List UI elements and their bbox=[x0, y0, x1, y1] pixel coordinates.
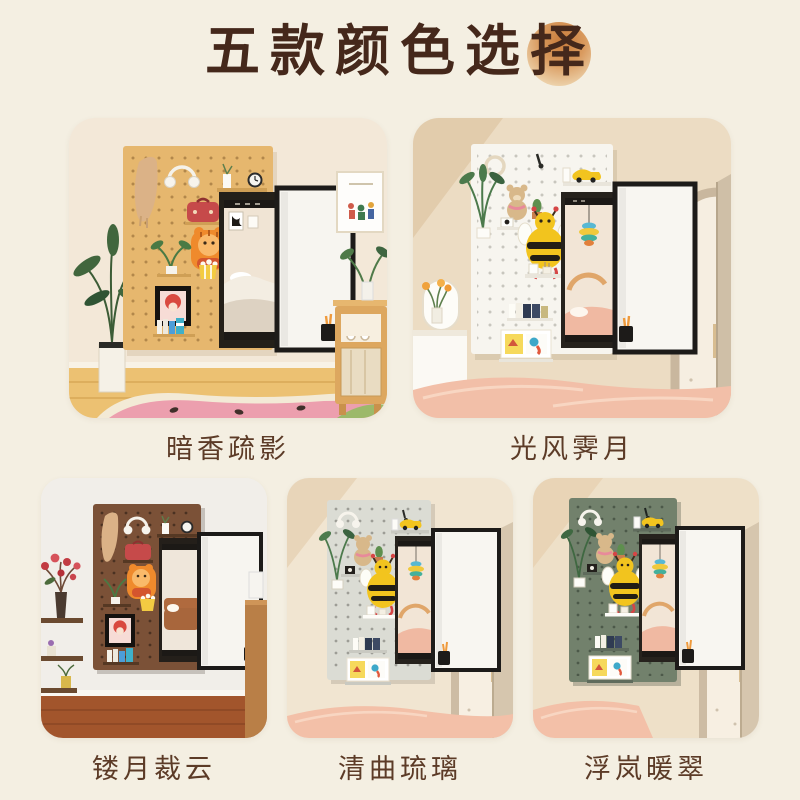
tiger-backpack bbox=[127, 564, 156, 599]
picture-book-rack bbox=[499, 330, 553, 362]
color-option-card-4: 清曲琉璃 bbox=[287, 478, 513, 784]
product-photo-grey bbox=[287, 478, 513, 738]
color-option-card-1: 暗香疏影 bbox=[69, 118, 387, 464]
options-row-top: 暗香疏影 bbox=[0, 118, 800, 464]
color-option-label-2: 光风霁月 bbox=[413, 427, 731, 464]
popcorn-bucket bbox=[199, 259, 218, 279]
color-option-label-5: 浮岚暖翠 bbox=[533, 747, 759, 784]
color-option-label-3: 镂月裁云 bbox=[41, 747, 267, 784]
options-row-bottom: 镂月裁云 bbox=[0, 478, 800, 784]
header: 五款颜色选择 bbox=[0, 0, 800, 100]
mirror-recess bbox=[561, 192, 617, 348]
promo-image: 五款颜色选择 bbox=[0, 0, 800, 800]
mirror-recess bbox=[639, 534, 681, 662]
mirror-recess bbox=[395, 536, 437, 664]
color-option-label-1: 暗香疏影 bbox=[69, 427, 387, 464]
wood-floor bbox=[41, 696, 267, 738]
picture-book-rack bbox=[587, 656, 633, 683]
popcorn-bucket bbox=[140, 594, 155, 611]
picture-book-rack bbox=[345, 658, 391, 685]
product-photo-walnut bbox=[41, 478, 267, 738]
wood-cabinet bbox=[333, 300, 387, 415]
color-option-label-4: 清曲琉璃 bbox=[287, 747, 513, 784]
wall-art-frame bbox=[337, 172, 383, 232]
product-photo-oak bbox=[69, 118, 387, 418]
color-option-card-2: 光风霁月 bbox=[413, 118, 731, 464]
color-option-card-3: 镂月裁云 bbox=[41, 478, 267, 784]
bed bbox=[533, 701, 653, 738]
color-option-card-5: 浮岚暖翠 bbox=[533, 478, 759, 784]
product-photo-green bbox=[533, 478, 759, 738]
product-photo-white bbox=[413, 118, 731, 418]
red-bag bbox=[185, 199, 221, 225]
girl-picture-frame bbox=[105, 614, 135, 647]
page-title: 五款颜色选择 bbox=[205, 20, 595, 83]
